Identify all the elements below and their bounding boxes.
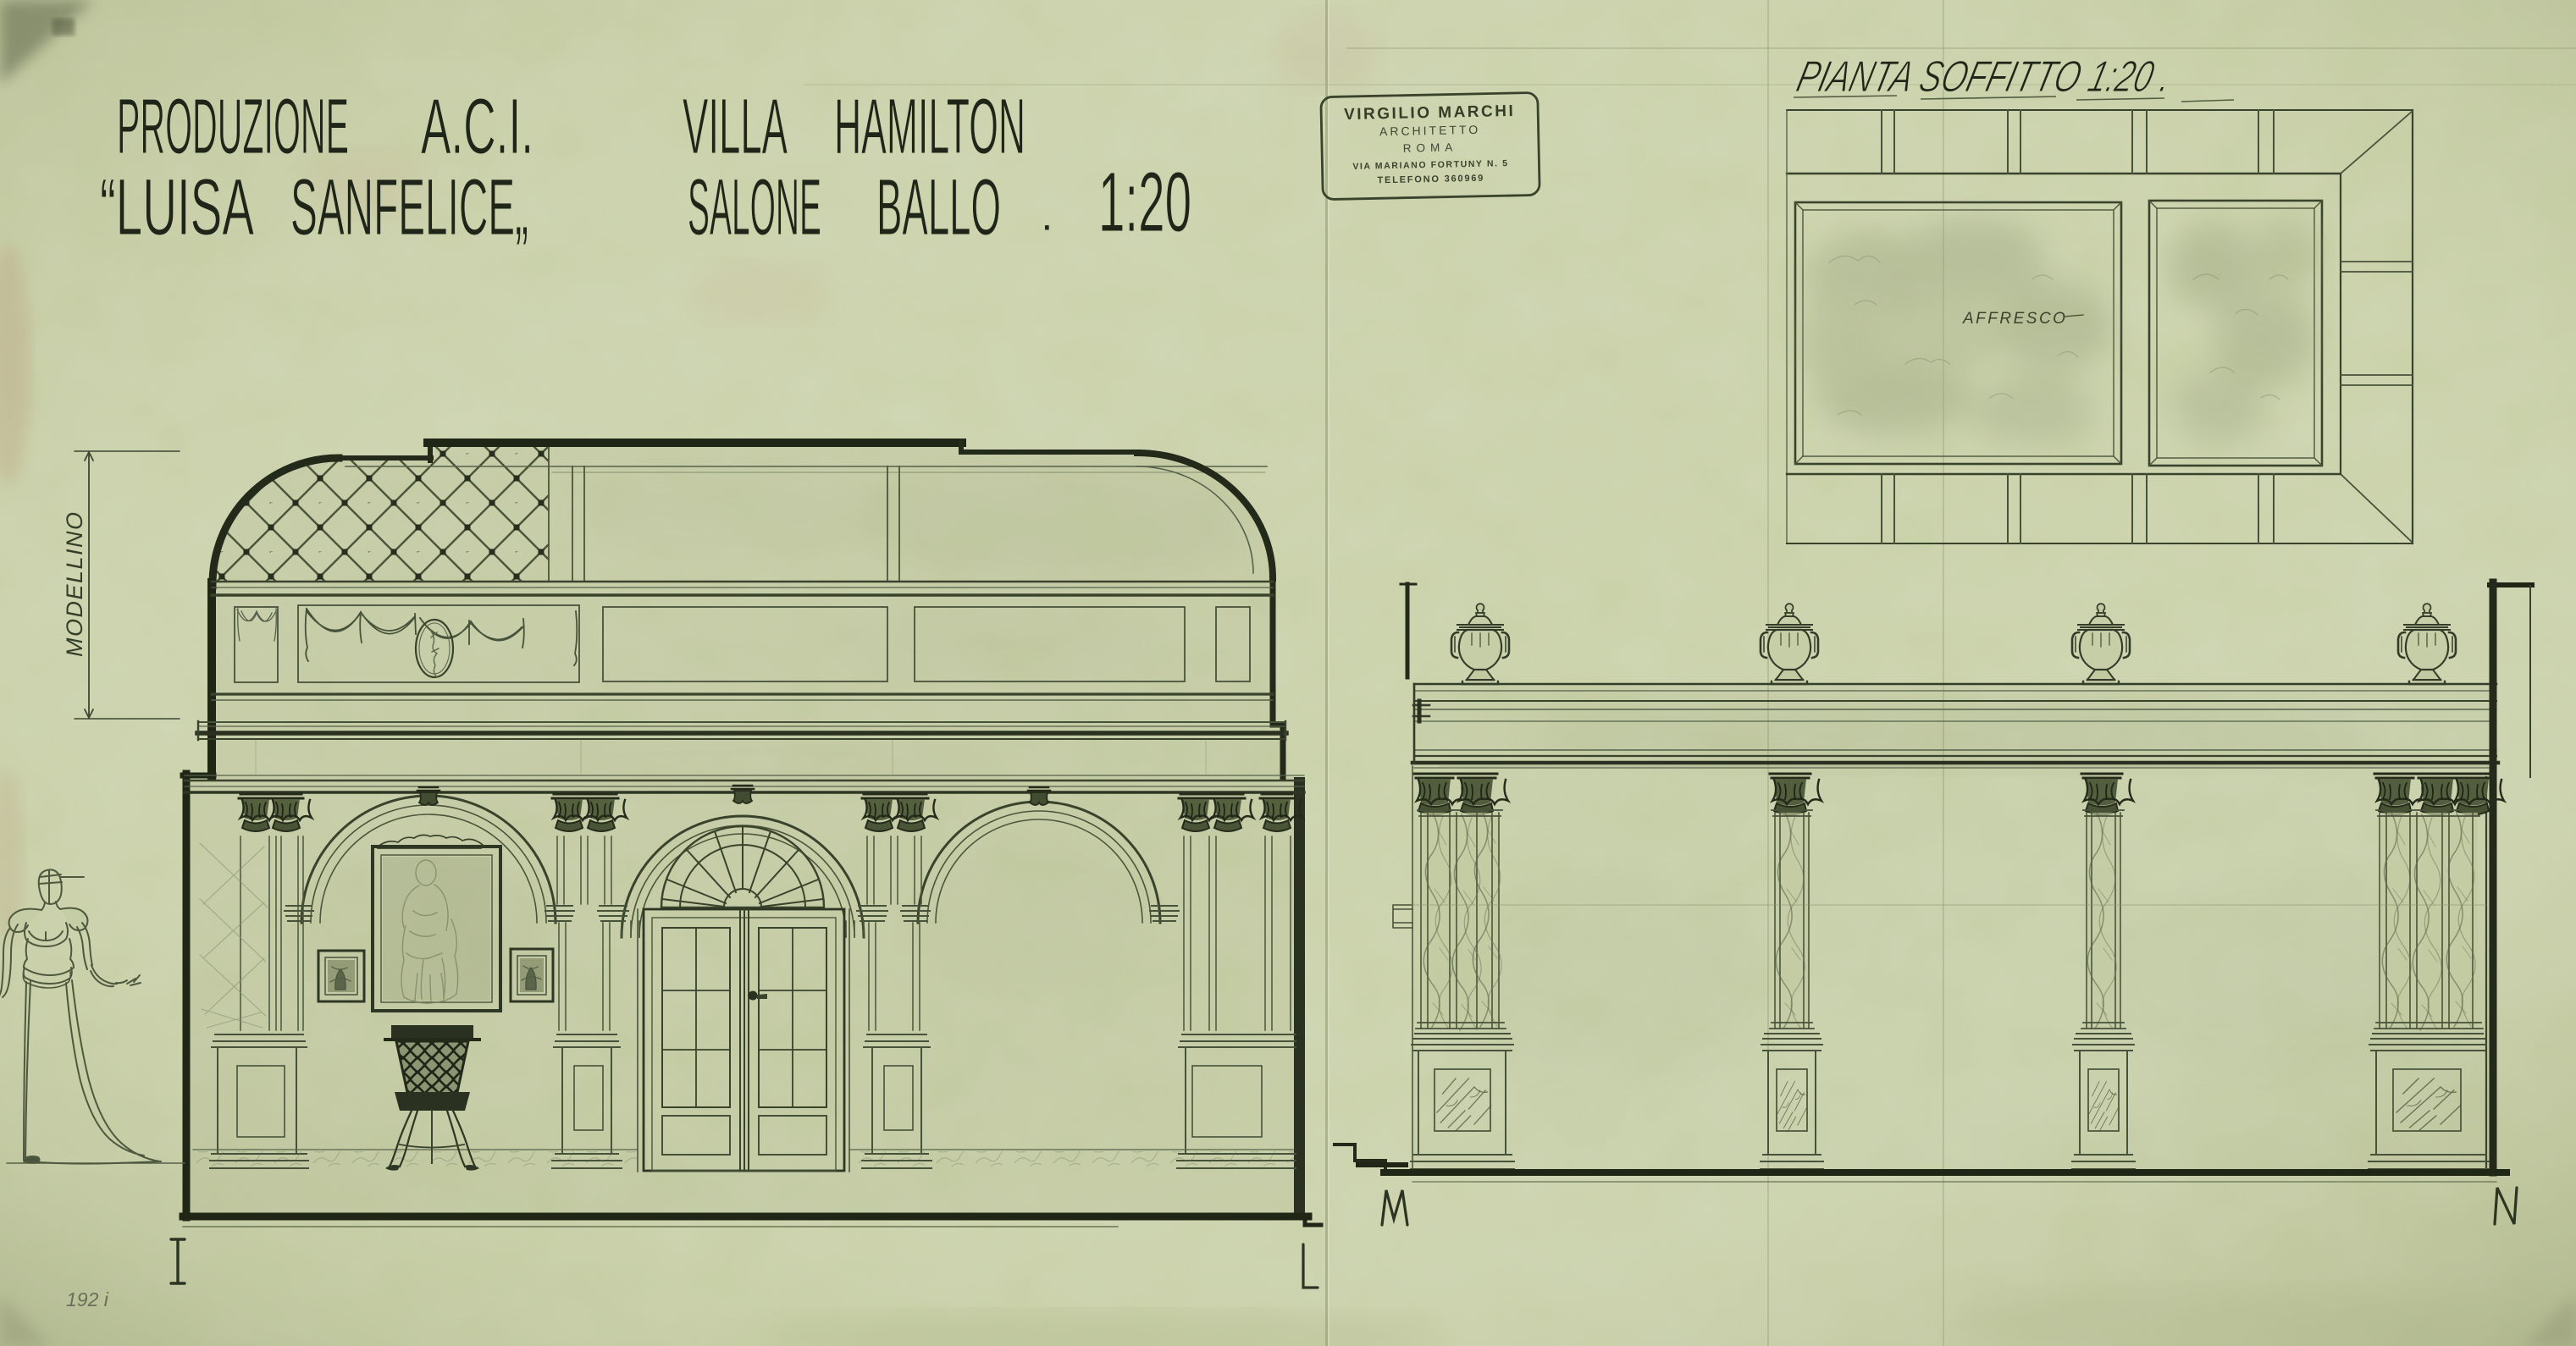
svg-text:A.C.I.: A.C.I.	[421, 82, 533, 170]
svg-text:ROMA: ROMA	[1403, 141, 1458, 154]
svg-text:ARCHITETTO: ARCHITETTO	[1379, 123, 1481, 138]
svg-text:MODELLINO: MODELLINO	[62, 510, 87, 657]
svg-text:“LUISA: “LUISA	[100, 163, 254, 252]
svg-text:AFFRESCO: AFFRESCO	[1962, 310, 2067, 328]
svg-text:PIANTA SOFFITTO 1:20 .: PIANTA SOFFITTO 1:20 .	[1792, 52, 2176, 102]
svg-text:SANFELICE„: SANFELICE„	[290, 163, 528, 252]
svg-text:VILLA: VILLA	[683, 82, 788, 170]
svg-text:.: .	[1040, 185, 1054, 241]
svg-text:1:20: 1:20	[1098, 155, 1191, 250]
svg-text:VIRGILIO MARCHI: VIRGILIO MARCHI	[1344, 102, 1516, 124]
svg-text:HAMILTON: HAMILTON	[834, 82, 1025, 170]
svg-text:SALONE: SALONE	[688, 163, 821, 252]
svg-text:PRODUZIONE: PRODUZIONE	[117, 82, 349, 170]
svg-text:BALLO: BALLO	[876, 163, 1001, 252]
svg-text:192 i: 192 i	[66, 1288, 109, 1310]
